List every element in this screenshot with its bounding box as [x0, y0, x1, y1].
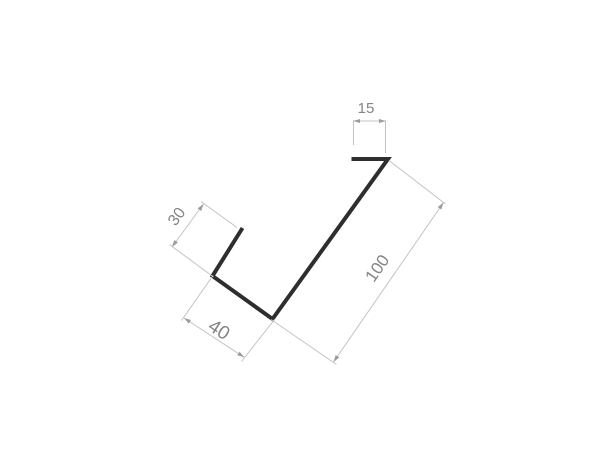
- dim-40-label: 40: [204, 316, 233, 345]
- dim-15-arrow-left: [353, 119, 360, 123]
- dim-15-label: 15: [358, 100, 375, 117]
- profile-outline: [213, 159, 389, 319]
- dim-40-arrow-right: [237, 352, 244, 358]
- dim-30-arrow-upper: [198, 204, 204, 211]
- dim-40-arrow-left: [184, 318, 191, 324]
- dim-100-extension-lower: [271, 320, 337, 365]
- dim-100-label: 100: [361, 251, 393, 285]
- dim-30-extension-lower: [170, 245, 214, 278]
- dim-40-extension-right: [242, 320, 275, 362]
- dim-100-extension-upper: [389, 161, 446, 205]
- dim-30-extension-upper: [201, 202, 237, 228]
- dim-30-label: 30: [165, 205, 189, 229]
- sheet-metal-profile-drawing: 15 30 100 40: [0, 0, 600, 465]
- dim-100-line: [334, 203, 444, 363]
- dim-40-extension-left: [182, 276, 214, 321]
- dim-100-arrow-lower: [334, 355, 340, 362]
- dim-30-arrow-lower: [172, 240, 178, 247]
- dim-15-arrow-right: [379, 119, 386, 123]
- dim-100-arrow-upper: [438, 203, 444, 210]
- technical-drawing-canvas: 15 30 100 40: [0, 0, 600, 465]
